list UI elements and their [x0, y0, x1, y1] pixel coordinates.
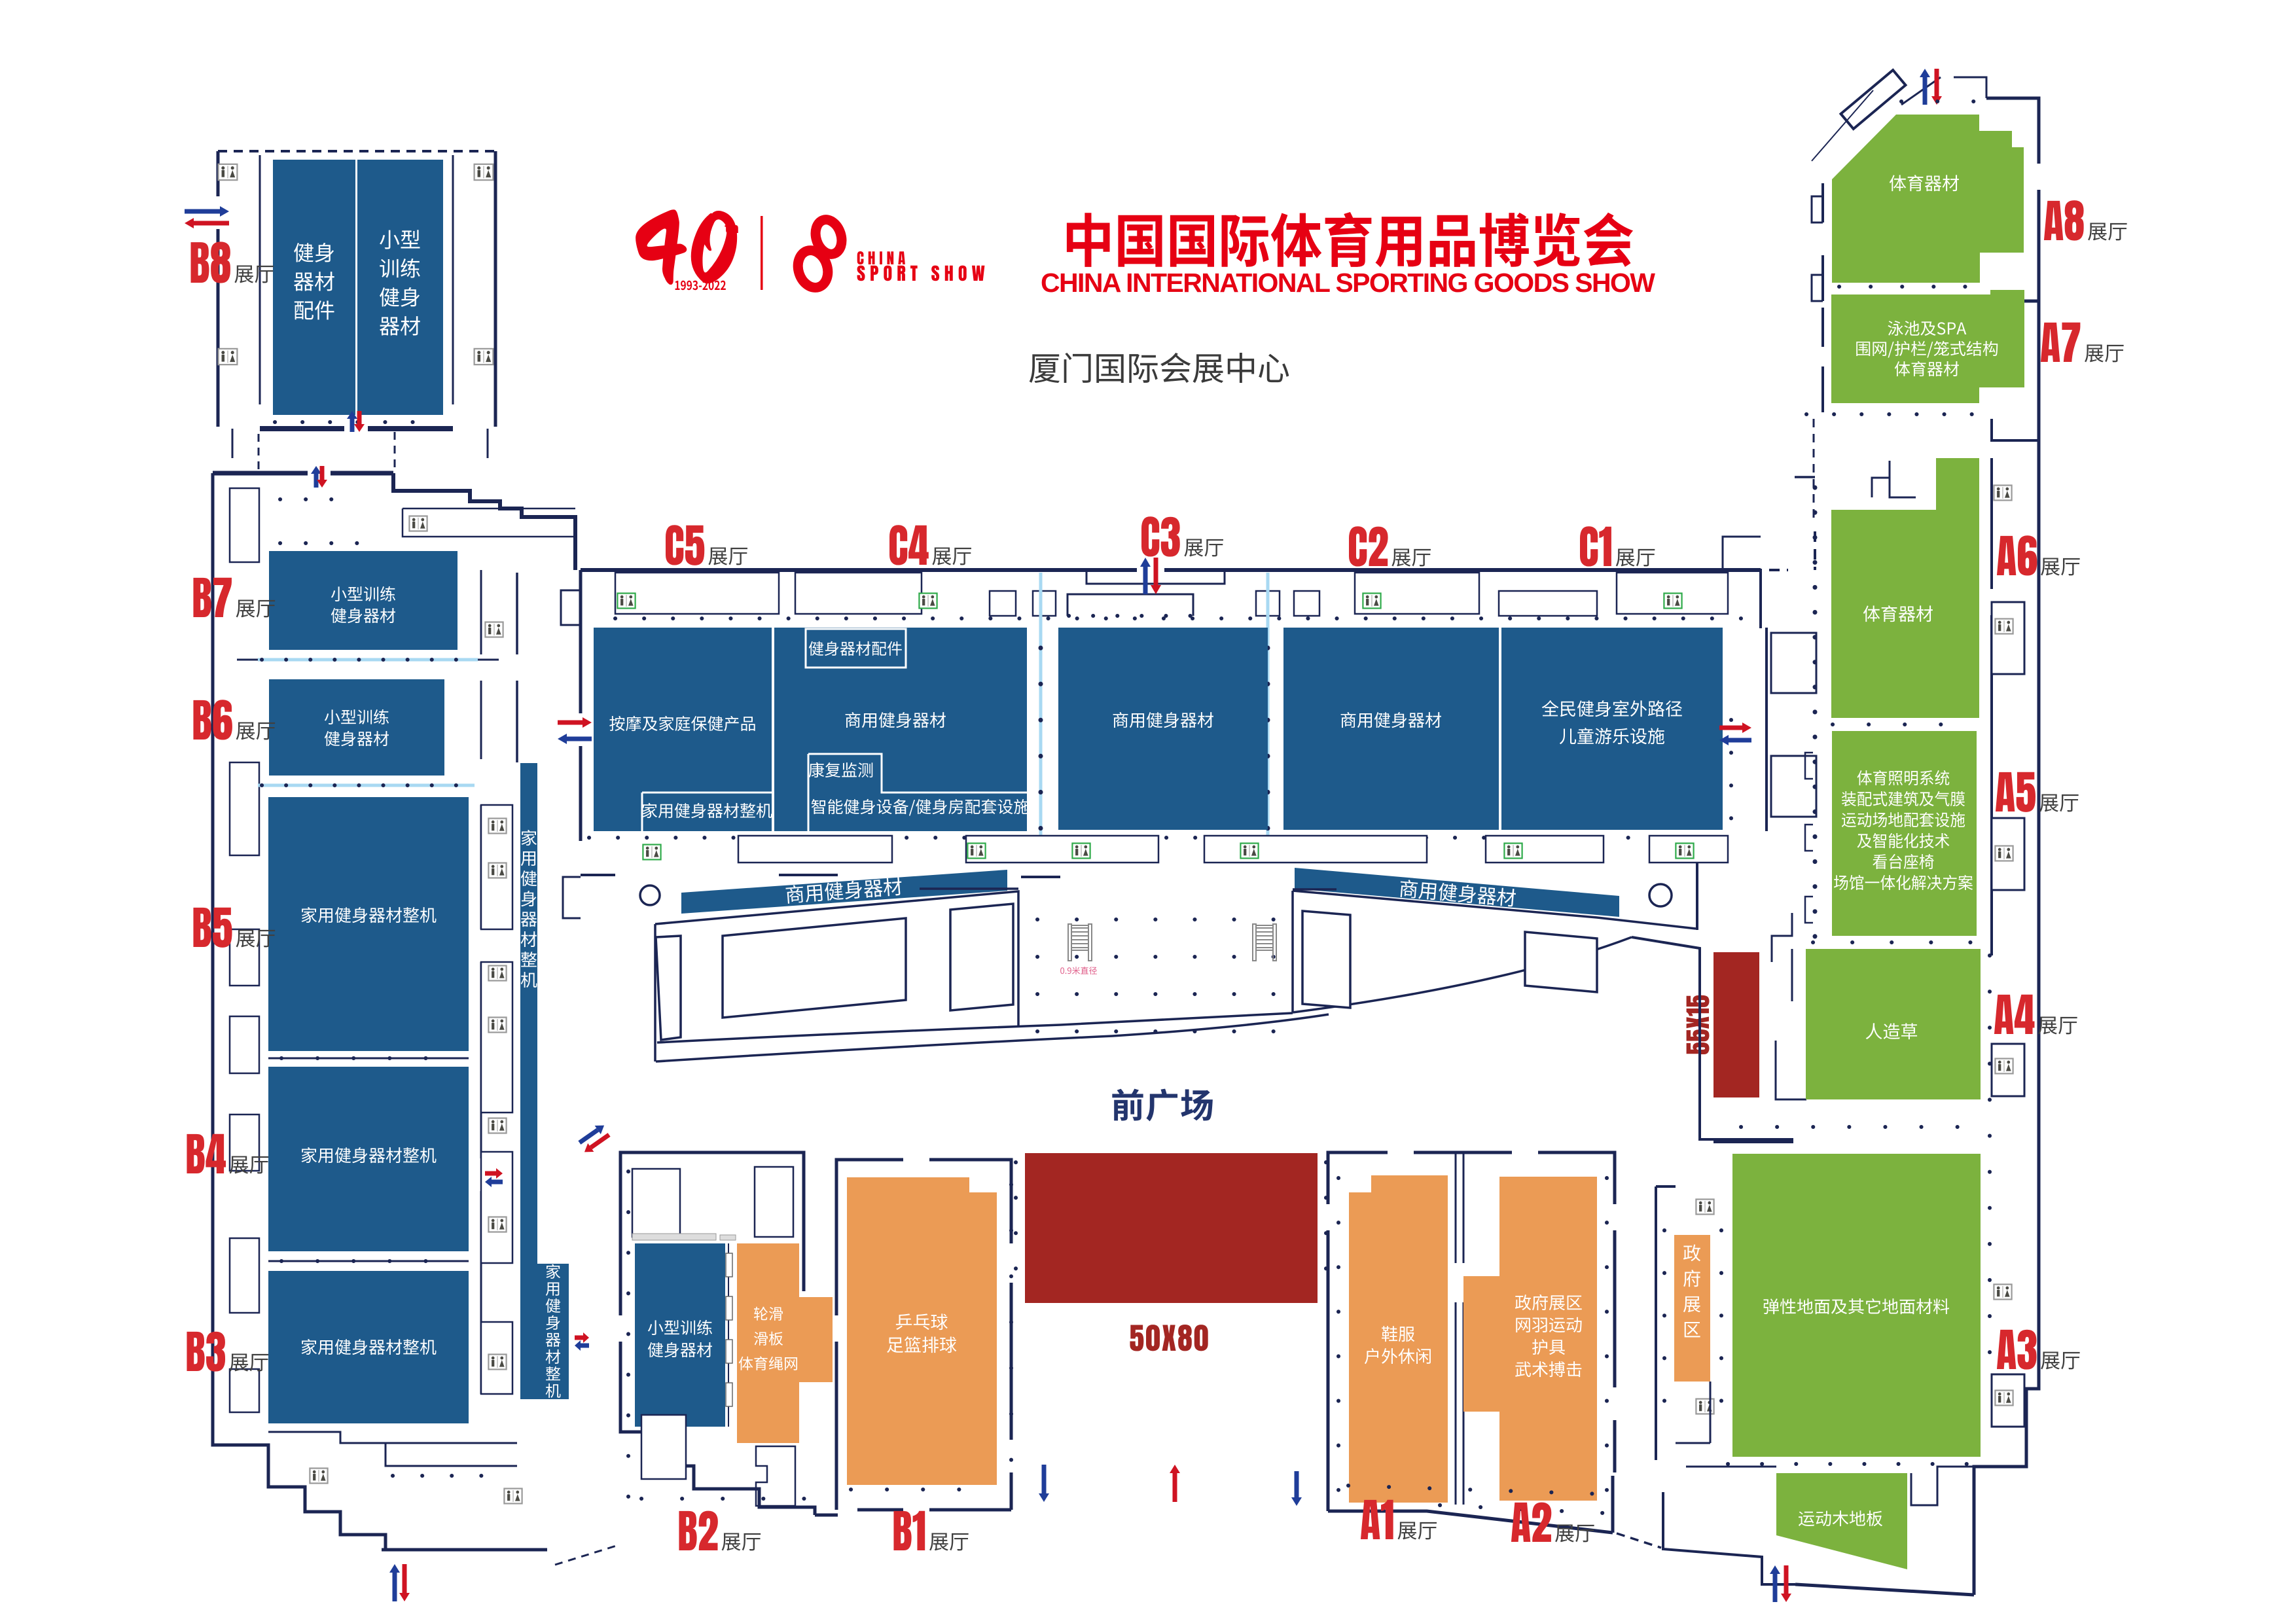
svg-text:CHINA INTERNATIONAL SPORTING G: CHINA INTERNATIONAL SPORTING GOODS SHOW [1041, 268, 1655, 298]
